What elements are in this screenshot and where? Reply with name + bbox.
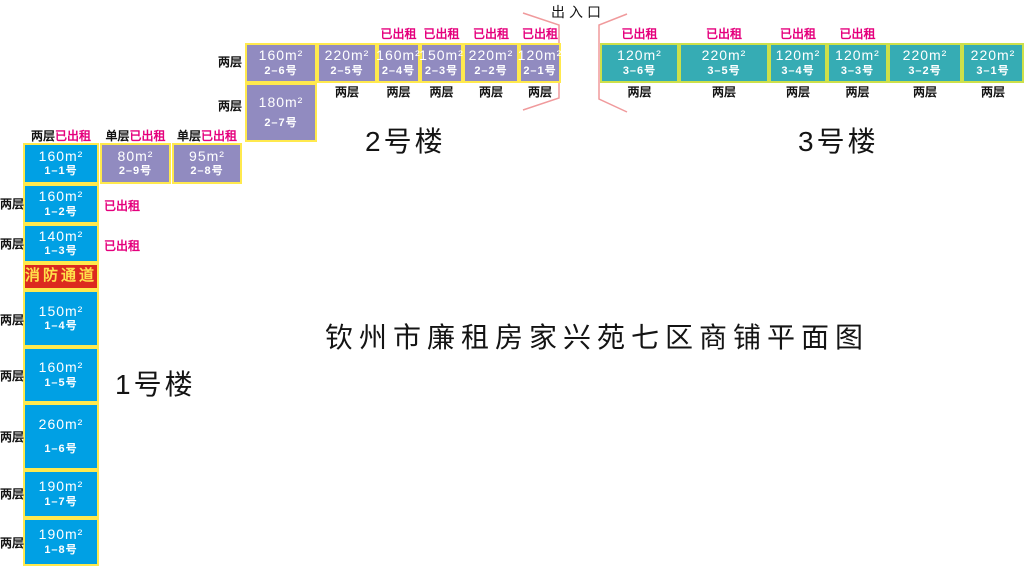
unit-cell-3-1: 220m² 3–1号 — [962, 43, 1024, 83]
unit-area: 160m² — [259, 47, 304, 65]
unit-cell-2-1: 120m² 2–1号 — [519, 43, 561, 83]
unit-number: 3–3号 — [841, 65, 874, 79]
header-rented: 已出租 — [201, 129, 237, 143]
floors-label-3-4: 两层 — [769, 86, 827, 98]
unit-cell-1-2: 160m² 1–2号 — [23, 184, 99, 224]
building-2-name: 2号楼 — [365, 120, 446, 160]
unit-cell-1-8: 190m² 1–8号 — [23, 518, 99, 566]
floors-label-1-3: 两层 — [0, 238, 24, 250]
floors-label-3-1: 两层 — [962, 86, 1024, 98]
unit-cell-2-8: 95m² 2–8号 — [172, 143, 242, 184]
rented-label-3-4: 已出租 — [769, 28, 827, 40]
unit-cell-2-4: 160m² 2–4号 — [377, 43, 420, 83]
unit-area: 260m² — [39, 416, 84, 434]
unit-number: 1–7号 — [44, 496, 77, 510]
floors-label-1-8: 两层 — [0, 537, 24, 549]
unit-number: 1–8号 — [44, 544, 77, 558]
unit-cell-1-3: 140m² 1–3号 — [23, 224, 99, 263]
floors-label-2-6: 两层 — [218, 56, 242, 68]
rented-label-2-4: 已出租 — [377, 28, 420, 40]
unit-number: 2–4号 — [382, 65, 415, 79]
unit-cell-3-3: 120m² 3–3号 — [827, 43, 888, 83]
unit-area: 160m² — [39, 148, 84, 166]
unit-area: 220m² — [469, 47, 514, 65]
building-1-name: 1号楼 — [115, 363, 196, 403]
unit-area: 120m² — [835, 47, 880, 65]
rented-label-3-5: 已出租 — [679, 28, 769, 40]
unit-number: 2–6号 — [264, 65, 297, 79]
unit-area: 160m² — [39, 188, 84, 206]
header-rented: 已出租 — [130, 129, 166, 143]
unit-cell-1-7: 190m² 1–7号 — [23, 470, 99, 518]
floors-label-2-1: 两层 — [519, 86, 561, 98]
unit-area: 120m² — [518, 47, 563, 65]
unit-number: 3–5号 — [707, 65, 740, 79]
unit-cell-2-7: 180m² 2–7号 — [245, 83, 317, 142]
unit-number: 2–8号 — [190, 165, 223, 179]
unit-cell-2-5: 220m² 2–5号 — [317, 43, 377, 83]
header-col-2-8: 单层已出租 — [172, 130, 242, 142]
unit-area: 180m² — [259, 94, 304, 112]
unit-cell-3-2: 220m² 3–2号 — [888, 43, 962, 83]
rented-label-2-3: 已出租 — [420, 28, 463, 40]
unit-number: 2–3号 — [425, 65, 458, 79]
floor-plan: 出入口 已出租 已出租 已出租 已出租 160m² 2–6号 220m² 2–5… — [0, 0, 1024, 568]
unit-number: 3–1号 — [976, 65, 1009, 79]
unit-area: 160m² — [39, 359, 84, 377]
building-3-name: 3号楼 — [798, 120, 879, 160]
floors-label-1-4: 两层 — [0, 314, 24, 326]
unit-area: 220m² — [702, 47, 747, 65]
unit-number: 2–2号 — [474, 65, 507, 79]
fire-passage-cell: 消防通道 — [23, 263, 99, 290]
unit-area: 220m² — [903, 47, 948, 65]
unit-number: 3–4号 — [781, 65, 814, 79]
unit-cell-3-6: 120m² 3–6号 — [600, 43, 679, 83]
unit-area: 150m² — [39, 303, 84, 321]
header-floors: 单层 — [177, 129, 201, 143]
unit-cell-2-2: 220m² 2–2号 — [463, 43, 519, 83]
floors-label-2-3: 两层 — [420, 86, 463, 98]
header-rented: 已出租 — [55, 129, 91, 143]
rented-label-3-3: 已出租 — [827, 28, 888, 40]
header-floors: 单层 — [105, 129, 129, 143]
unit-number: 1–6号 — [44, 443, 77, 457]
unit-area: 190m² — [39, 478, 84, 496]
unit-number: 1–3号 — [44, 245, 77, 259]
floors-label-3-5: 两层 — [679, 86, 769, 98]
unit-number: 1–2号 — [44, 206, 77, 220]
floors-label-3-2: 两层 — [888, 86, 962, 98]
unit-area: 160m² — [376, 47, 421, 65]
unit-number: 2–9号 — [119, 165, 152, 179]
unit-number: 1–5号 — [44, 377, 77, 391]
floors-label-2-7: 两层 — [218, 100, 242, 112]
unit-cell-1-6: 260m² 1–6号 — [23, 403, 99, 470]
header-col-2-9: 单层已出租 — [100, 130, 171, 142]
rented-label-3-6: 已出租 — [600, 28, 679, 40]
rented-label-1-2: 已出租 — [104, 200, 140, 212]
floors-label-2-4: 两层 — [377, 86, 420, 98]
unit-number: 2–5号 — [330, 65, 363, 79]
unit-number: 1–1号 — [44, 165, 77, 179]
floors-label-3-6: 两层 — [600, 86, 679, 98]
unit-area: 120m² — [776, 47, 821, 65]
floors-label-1-2: 两层 — [0, 198, 24, 210]
unit-cell-2-3: 150m² 2–3号 — [420, 43, 463, 83]
unit-number: 3–2号 — [908, 65, 941, 79]
unit-area: 80m² — [118, 148, 154, 166]
rented-label-2-2: 已出租 — [463, 28, 519, 40]
rented-label-1-3: 已出租 — [104, 240, 140, 252]
unit-cell-1-5: 160m² 1–5号 — [23, 347, 99, 403]
unit-cell-1-4: 150m² 1–4号 — [23, 290, 99, 347]
unit-area: 95m² — [189, 148, 225, 166]
unit-area: 140m² — [39, 228, 84, 246]
unit-number: 3–6号 — [623, 65, 656, 79]
header-floors: 两层 — [31, 129, 55, 143]
floors-label-1-6: 两层 — [0, 431, 24, 443]
page-title: 钦州市廉租房家兴苑七区商铺平面图 — [325, 316, 869, 356]
unit-area: 220m² — [971, 47, 1016, 65]
floors-label-3-3: 两层 — [827, 86, 888, 98]
floors-label-2-2: 两层 — [463, 86, 519, 98]
unit-cell-1-1: 160m² 1–1号 — [23, 143, 99, 184]
unit-area: 220m² — [325, 47, 370, 65]
unit-cell-3-4: 120m² 3–4号 — [769, 43, 827, 83]
unit-cell-3-5: 220m² 3–5号 — [679, 43, 769, 83]
floors-label-1-7: 两层 — [0, 488, 24, 500]
unit-cell-2-6: 160m² 2–6号 — [245, 43, 317, 83]
unit-area: 120m² — [617, 47, 662, 65]
unit-number: 2–1号 — [523, 65, 556, 79]
unit-cell-2-9: 80m² 2–9号 — [100, 143, 171, 184]
floors-label-2-5: 两层 — [317, 86, 377, 98]
unit-number: 2–7号 — [264, 117, 297, 131]
floors-label-1-5: 两层 — [0, 370, 24, 382]
unit-area: 190m² — [39, 526, 84, 544]
header-col-1-1: 两层已出租 — [23, 130, 99, 142]
rented-label-2-1: 已出租 — [519, 28, 561, 40]
unit-area: 150m² — [419, 47, 464, 65]
unit-number: 1–4号 — [44, 320, 77, 334]
